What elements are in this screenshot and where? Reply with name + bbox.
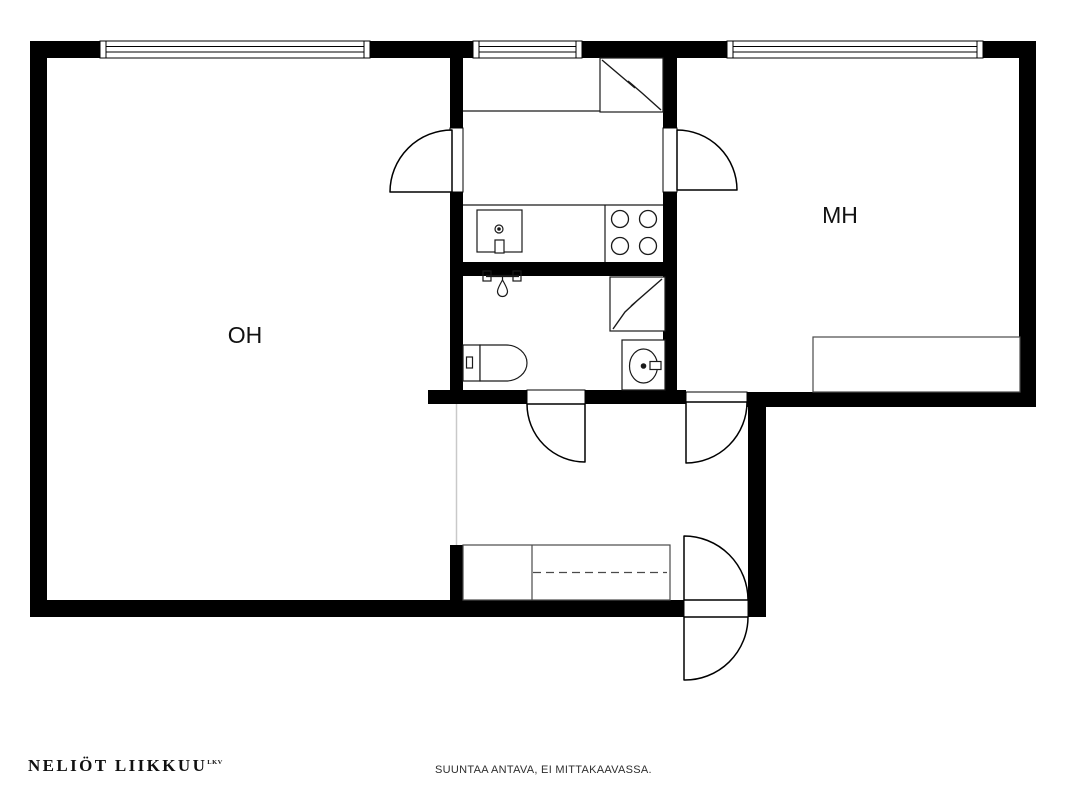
- door-arc-icon-bath: [527, 404, 585, 462]
- window-icon-oh: [100, 41, 370, 58]
- window-icon-mh: [727, 41, 983, 58]
- room-label-oh: OH: [228, 322, 263, 348]
- wall-mh-bottom: [747, 392, 1036, 407]
- washbasin-icon: [622, 340, 665, 390]
- kitchen-sink-icon: [477, 210, 522, 253]
- company-logo: NELIÖT LIIKKUULKV: [28, 756, 223, 776]
- disclaimer-text: SUUNTAA ANTAVA, EI MITTAKAAVASSA.: [435, 764, 652, 776]
- bathroom-fixtures: [463, 271, 665, 390]
- door-arc-icon-kitchen-mh: [677, 130, 737, 190]
- door-arc-icon-entry-outer: [684, 617, 748, 680]
- wardrobe-icon: [463, 545, 670, 600]
- stove-icon: [612, 211, 657, 255]
- wall-hall-right: [748, 392, 766, 617]
- refrigerator-icon: [600, 58, 663, 112]
- kitchen-fixtures: [463, 58, 663, 262]
- window-icon-kitchen: [473, 41, 582, 58]
- wall-kitchen-bath-divider: [450, 262, 677, 276]
- wall-left: [30, 41, 47, 617]
- floor-plan-drawing: OH MH: [0, 0, 1066, 800]
- company-logo-text: NELIÖT LIIKKUU: [28, 756, 207, 775]
- door-gap-bath: [527, 390, 585, 404]
- door-gap-kitchen-mh: [663, 128, 677, 192]
- furniture: [463, 337, 1020, 600]
- wall-oh-kitchen-lower: [450, 192, 463, 404]
- room-label-mh: MH: [822, 202, 858, 228]
- wall-kitchen-mh-upper: [663, 58, 677, 128]
- door-gap-entry: [684, 600, 748, 617]
- door-arc-icon-entry-inner: [684, 536, 748, 600]
- wall-oh-hall-stub: [450, 545, 463, 600]
- wall-mh-right: [1019, 41, 1036, 407]
- wall-bath-bottom-left: [428, 390, 527, 404]
- windows: [100, 41, 983, 58]
- wall-top-mid2: [582, 41, 727, 58]
- wall-bottom: [30, 600, 684, 617]
- door-arc-icon-mh-hall: [686, 402, 747, 463]
- wall-bath-bottom-right: [585, 390, 686, 404]
- toilet-icon: [463, 345, 527, 381]
- floor-plan-page: OH MH NELIÖT LIIKKUULKV SUUNTAA ANTAVA, …: [0, 0, 1066, 800]
- walls: [30, 41, 1036, 617]
- door-arc-icon-oh: [390, 130, 452, 192]
- water-heater-icon: [610, 277, 665, 331]
- company-logo-lkv: LKV: [207, 759, 223, 766]
- wall-oh-kitchen-upper: [450, 58, 463, 128]
- bed-icon: [813, 337, 1020, 392]
- wall-top-mid1: [370, 41, 473, 58]
